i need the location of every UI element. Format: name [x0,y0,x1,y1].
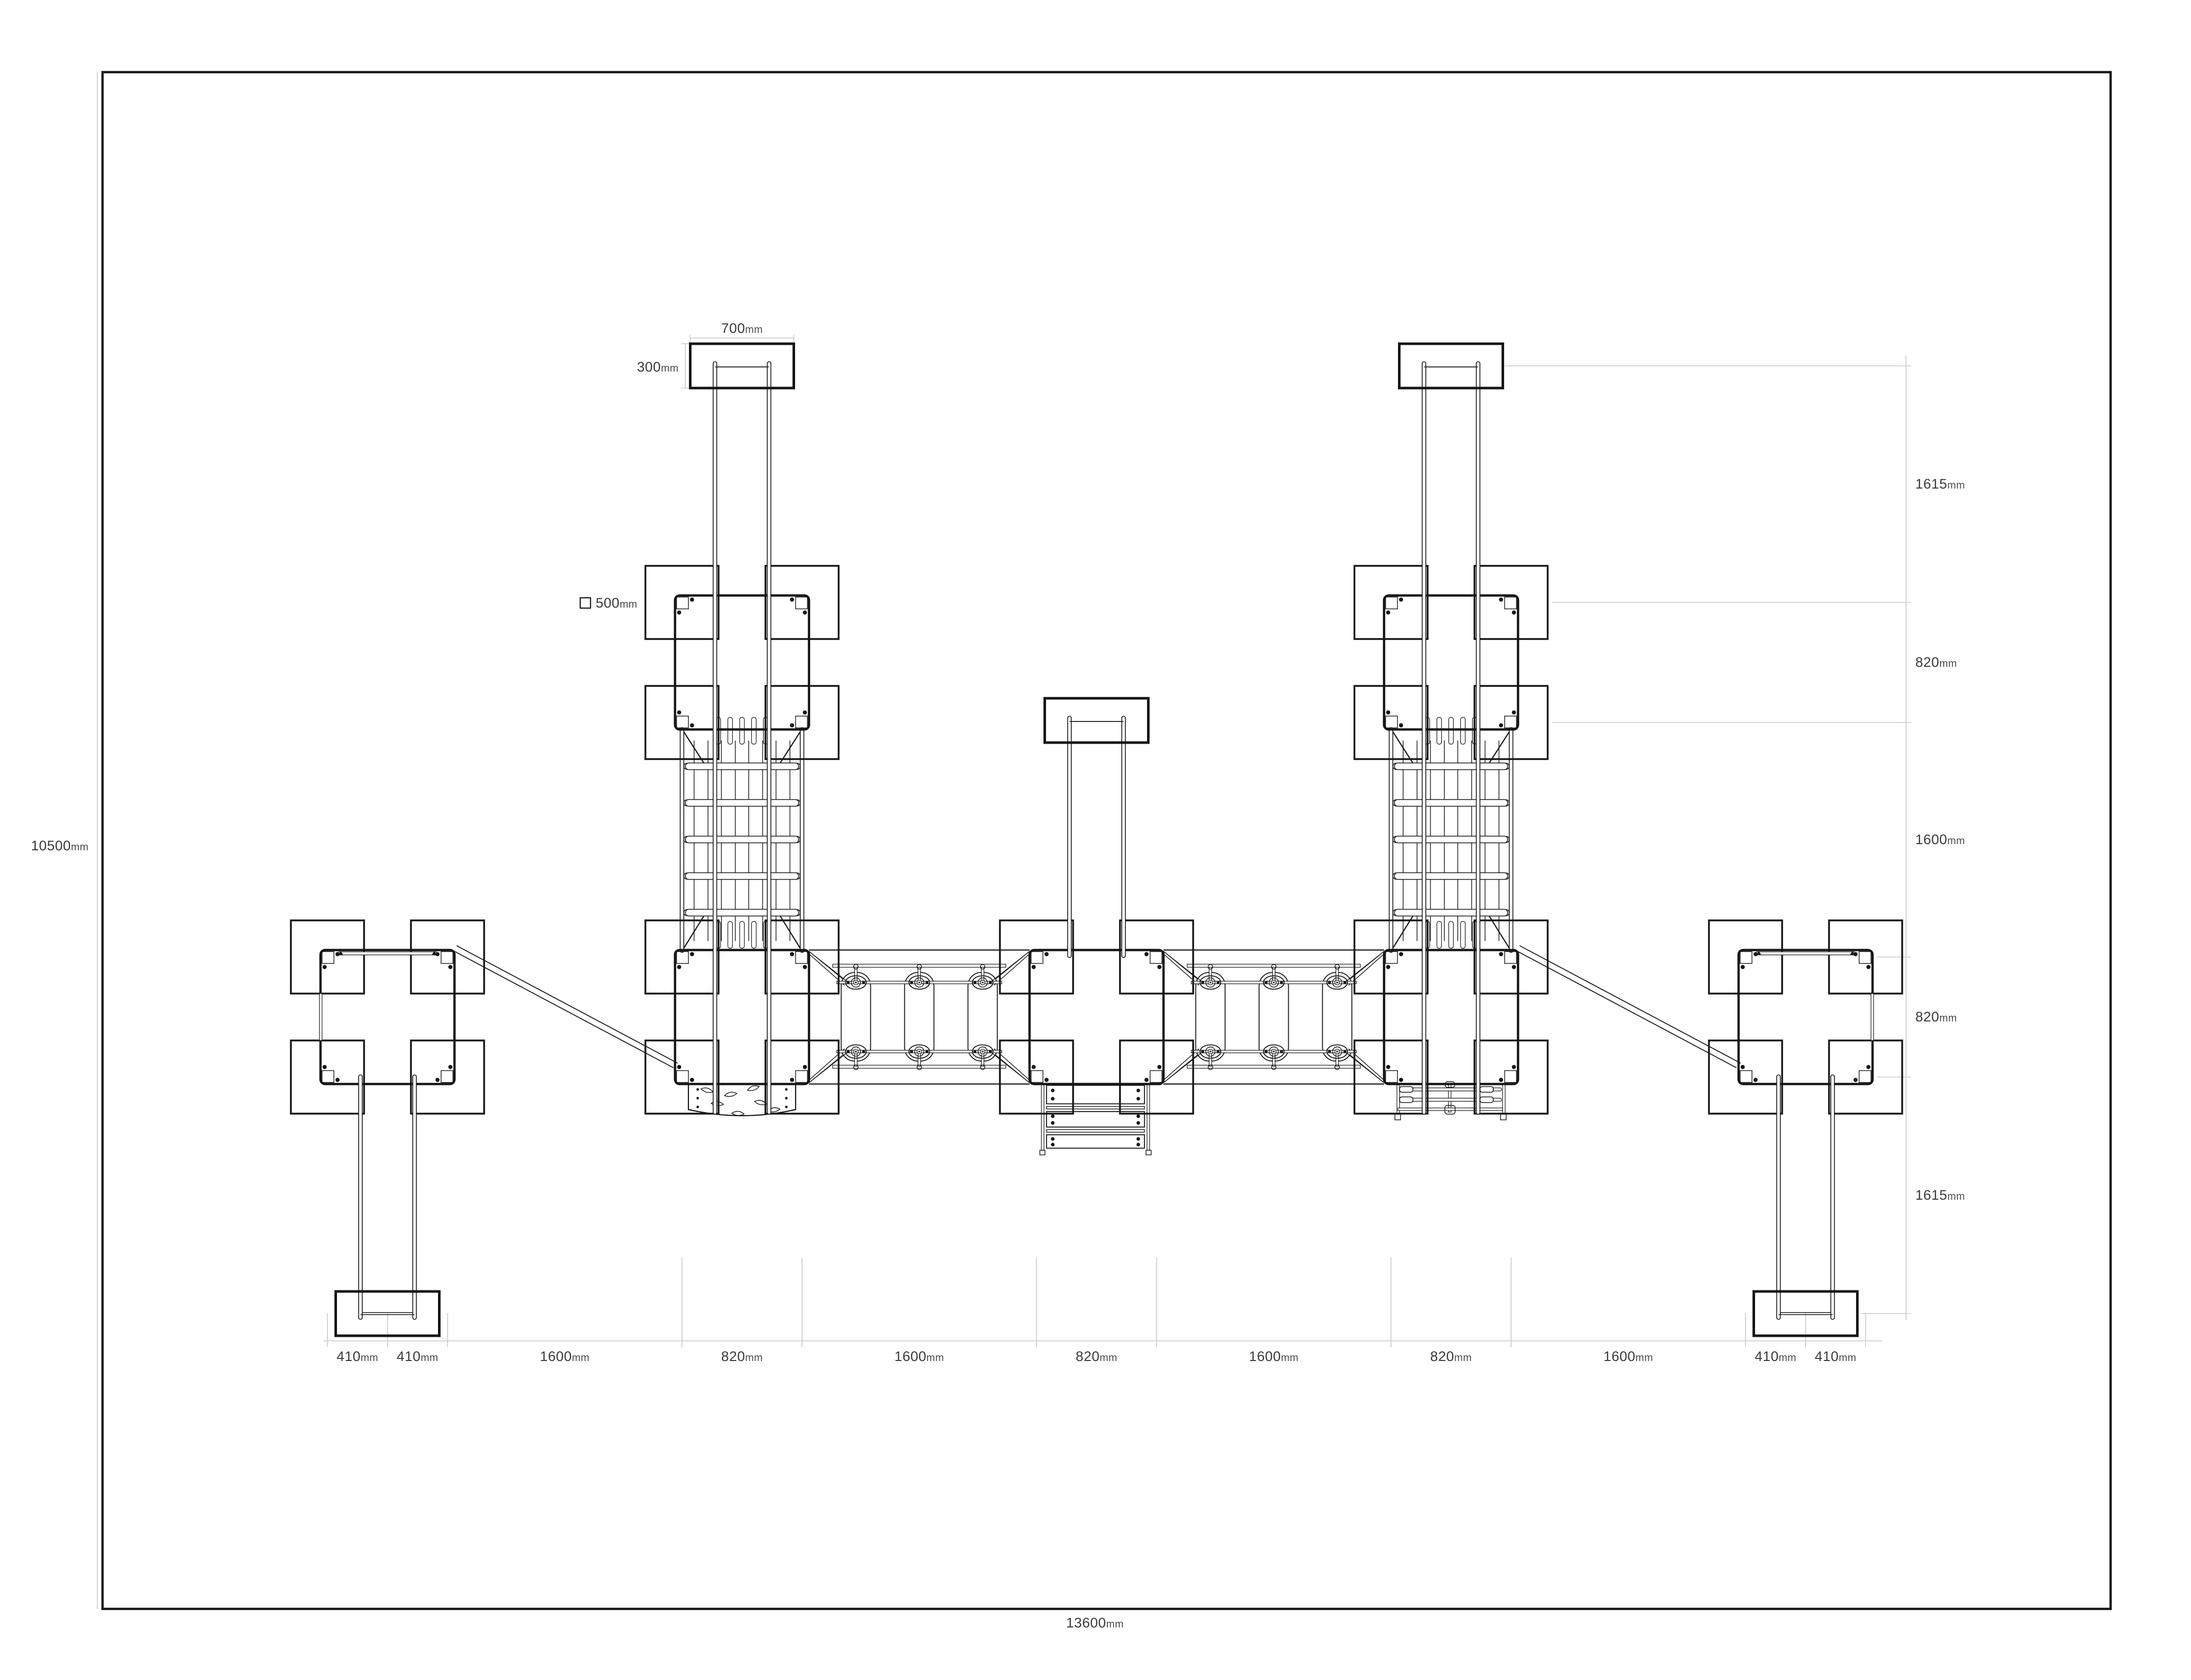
legend-label: 500mm [596,595,637,611]
dim-bottom-4: 1600mm [895,1349,944,1364]
dim-bottom-0: 410mm [336,1349,378,1364]
slide-box-left-tower-top [690,344,794,388]
climbing-ramp-left-tower [688,1084,796,1116]
slide-box-right-tower-top [1400,344,1503,388]
dim-bottom-5: 820mm [1076,1349,1118,1364]
railing-right-cross [1756,951,1874,1040]
steps-center-cluster [1040,1084,1151,1155]
dim-right-3: 820mm [1915,1009,1957,1024]
dim-bottom-1: 410mm [397,1349,439,1364]
railing-left-cross [319,951,437,1040]
diagonal-slide-left [452,946,678,1068]
dim-width-overall: 13600mm [1066,1615,1124,1631]
slide-rails-center [1068,716,1125,957]
climbing-net-right-tower [1389,717,1513,952]
drawing-frame-border [103,72,2111,1609]
diagonal-slide-right [1515,946,1741,1068]
dim-right-4: 1615mm [1915,1187,1965,1203]
platform-right-tower-main [1355,920,1548,1114]
dim-top-box-depth: 300mm [637,359,679,375]
dim-bottom-6: 1600mm [1249,1349,1299,1364]
platform-left-tower-main [646,920,839,1114]
slide-box-center-top [1045,698,1149,743]
pod-bridge-east [1164,950,1384,1084]
square-icon [580,598,591,608]
dimension-guides [97,72,1911,1609]
dim-bottom-10: 410mm [1815,1349,1857,1364]
right-dim-ticks [1505,366,1911,1314]
dim-bottom-9: 410mm [1755,1349,1796,1364]
slide-rails-right-cross [1777,1075,1834,1319]
platform-right-tower-upper [1355,566,1548,759]
platform-left-tower-upper [646,566,839,759]
dim-right-1: 820mm [1915,654,1957,670]
plan-drawing-canvas: 500mm 10500mm 13600mm 700mm 300mm 410mm … [0,0,2191,1680]
plan-svg: 500mm 10500mm 13600mm 700mm 300mm 410mm … [0,0,2191,1680]
slide-rails-left-cross [359,1075,416,1319]
dim-top-box-width: 700mm [721,321,763,336]
dim-height-overall: 10500mm [31,838,89,853]
dim-bottom-8: 1600mm [1604,1349,1653,1364]
dim-bottom-3: 820mm [721,1349,763,1364]
dim-bottom-2: 1600mm [540,1349,589,1364]
dim-right-2: 1600mm [1915,832,1965,847]
post-size-legend: 500mm [580,595,637,611]
platform-center [1000,920,1193,1114]
dim-right-0: 1615mm [1915,476,1965,492]
dim-bottom-7: 820mm [1430,1349,1472,1364]
bottom-dim-ticks [328,1257,1866,1347]
climbing-net-left-tower [680,717,804,952]
pod-bridge-west [809,950,1030,1084]
